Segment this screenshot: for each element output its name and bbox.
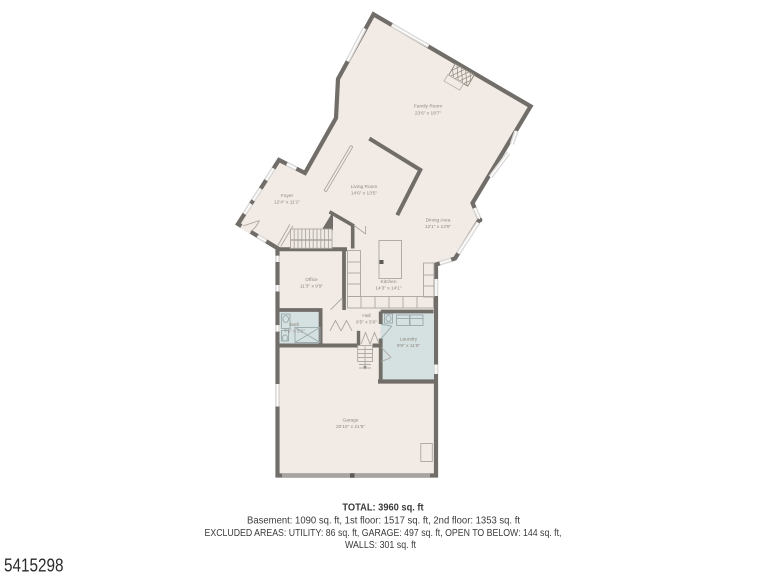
- svg-text:EXCLUDED AREAS: UTILITY: 86 sq: EXCLUDED AREAS: UTILITY: 86 sq. ft, GARA…: [205, 528, 562, 539]
- svg-text:Family Room: Family Room: [414, 104, 442, 110]
- svg-text:5415298: 5415298: [4, 556, 63, 576]
- svg-text:14'6" x 13'5": 14'6" x 13'5": [351, 191, 378, 197]
- svg-text:Office: Office: [305, 277, 318, 283]
- svg-text:Garage: Garage: [343, 418, 359, 424]
- svg-text:TOTAL: 3960 sq. ft: TOTAL: 3960 sq. ft: [342, 503, 424, 514]
- svg-text:12'1" x 13'9": 12'1" x 13'9": [425, 224, 452, 230]
- svg-text:WALLS: 301 sq. ft: WALLS: 301 sq. ft: [345, 540, 416, 551]
- svg-text:Foyer: Foyer: [281, 193, 294, 199]
- svg-text:Bath: Bath: [290, 322, 300, 328]
- svg-text:Laundry: Laundry: [400, 337, 418, 343]
- svg-text:9'5" x 5'9": 9'5" x 5'9": [356, 320, 377, 326]
- svg-text:11'3" x 9'9": 11'3" x 9'9": [300, 284, 324, 290]
- svg-text:23'6" x 18'7": 23'6" x 18'7": [415, 111, 442, 117]
- svg-text:Living Room: Living Room: [351, 184, 378, 190]
- svg-text:Basement: 1090 sq. ft, 1st flo: Basement: 1090 sq. ft, 1st floor: 1517 s…: [247, 515, 520, 526]
- svg-text:7'5" x 5'1": 7'5" x 5'1": [284, 329, 305, 335]
- svg-text:9'9" x 11'5": 9'9" x 11'5": [397, 343, 421, 349]
- svg-text:Hall: Hall: [362, 313, 370, 319]
- svg-text:Kitchen: Kitchen: [381, 279, 397, 285]
- svg-text:Dining Area: Dining Area: [426, 218, 451, 224]
- svg-text:20'10" x 21'5": 20'10" x 21'5": [336, 424, 365, 430]
- svg-text:12'4" x 11'1": 12'4" x 11'1": [274, 200, 300, 206]
- svg-text:14'3" x 14'1": 14'3" x 14'1": [375, 286, 402, 292]
